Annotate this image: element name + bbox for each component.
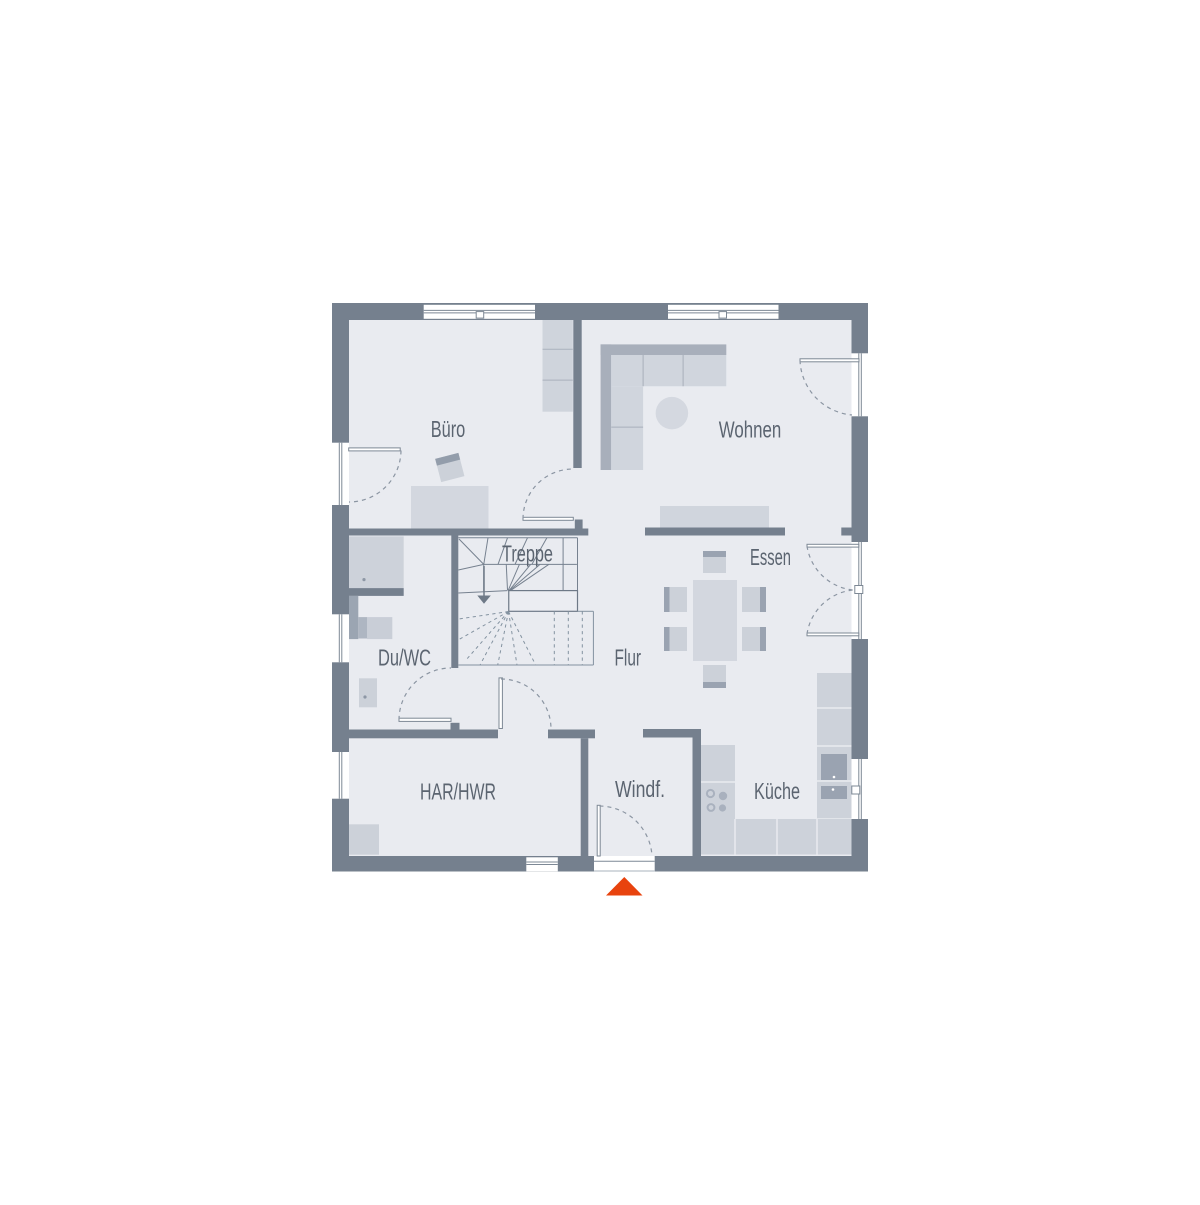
svg-text:Treppe: Treppe [502, 541, 553, 567]
svg-text:Flur: Flur [615, 645, 642, 671]
svg-text:Essen: Essen [750, 544, 791, 570]
svg-text:Wohnen: Wohnen [719, 417, 782, 443]
svg-text:Büro: Büro [431, 416, 466, 442]
svg-text:Du/WC: Du/WC [378, 644, 431, 670]
svg-text:Windf.: Windf. [615, 776, 665, 802]
svg-text:Küche: Küche [754, 778, 800, 804]
svg-text:HAR/HWR: HAR/HWR [420, 779, 496, 805]
